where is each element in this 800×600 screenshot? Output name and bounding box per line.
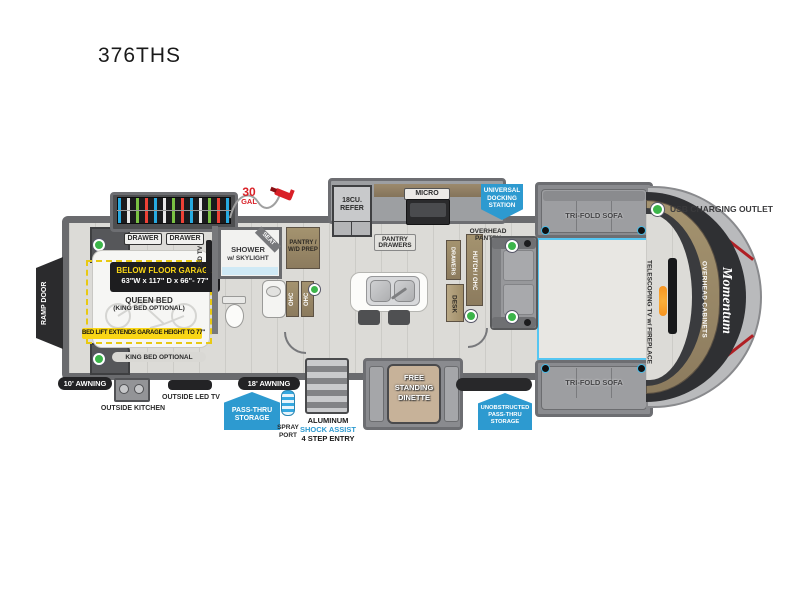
fuel-unit-label: GAL [236,198,262,207]
unobstructed-line3: STORAGE [478,419,532,426]
sink-basin-left [370,280,391,302]
cupholder [524,240,531,247]
usb-outlet-dot [506,311,518,323]
dinette-window [371,412,382,415]
awning-10-text: 10' AWNING [64,379,107,388]
desk-label: DESK [450,292,457,316]
outside-kitchen-burner [134,384,144,394]
trifold-sofa-bottom [541,366,647,410]
entry-steps [305,358,349,414]
ramp-door-label: RAMP DOOR [41,270,49,336]
refer-label-2: REFER [332,205,372,213]
cupholder [541,226,550,235]
telescoping-tv-screen [671,263,674,329]
pantry-wd-label-1: PANTRY / [286,240,320,247]
outside-led-tv-screen [172,382,208,385]
fuel-nozzle-icon [269,182,294,201]
pantry-drawers-label-2: DRAWERS [374,242,416,251]
drawer-label-left: DRAWER [124,233,162,245]
cupholder [637,364,646,373]
docking-line2: DOCKING [481,195,523,203]
trifold-sofa-top-label: TRI-FOLD SOFA [541,212,647,221]
tool-rack-rail [117,210,231,211]
floorplan-canvas: 376THS RAMP DOOR DRAWER DRAWER 30 GAL BE… [0,0,800,600]
range-glass [410,203,446,217]
living-room-floor [537,238,652,360]
awning-18-label: 18' AWNING [238,377,300,390]
shower-label-2: w/ SKYLIGHT [220,255,276,262]
spray-port-hose [281,390,295,416]
cupholder [524,319,531,326]
queen-bed-label: QUEEN BED [94,296,204,305]
side-sofa-back [492,238,501,328]
usb-legend-label: USB CHARGING OUTLET [670,205,773,215]
bottom-wall-window [148,368,186,373]
rear-wall-window [66,308,69,338]
telescoping-tv-label-line1: TELESCOPING TV [645,260,652,317]
passthru-line2: STORAGE [224,415,280,423]
docking-line3: STATION [481,202,523,210]
sofa-top-backrest [543,191,645,201]
toilet-bowl [225,304,244,328]
bottom-wall-window [106,368,140,373]
telescoping-tv-label: TELESCOPING TV w/ FIREPLACE [645,260,652,344]
page-title: 376THS [98,44,181,68]
sofa-top-window [552,186,636,189]
pantry-wd-label-2: W/D PREP [286,247,320,254]
usb-outlet-dot [465,310,477,322]
bath-ohc-left-label: OHC [289,288,296,310]
overhead-cabinets-label: OVERHEAD CABINETS [700,254,707,344]
led-tv-screen [208,243,210,271]
usb-outlet-dot [309,284,320,295]
led-tv-label: LED TV [197,240,204,274]
passthru-tube [456,378,532,391]
outside-kitchen-burner [119,384,129,394]
unobstructed-line1: UNOBSTRUCTED [478,405,532,412]
awning-10-label: 10' AWNING [58,377,112,390]
trifold-sofa-bottom-label: TRI-FOLD SOFA [541,379,647,388]
vanity-sink [266,286,281,297]
fireplace [659,286,667,316]
usb-legend-dot [651,203,664,216]
cupholder [637,226,646,235]
outside-kitchen-label: OUTSIDE KITCHEN [90,405,176,413]
island-stool [388,310,410,325]
outside-led-tv-label: OUTSIDE LED TV [160,394,222,402]
refrigerator-doors [334,221,370,235]
garage-dims-label: 63"W x 117" D x 66"- 77" [112,277,218,286]
shower-skylight [222,267,278,275]
brand-logo: Momentum [718,252,734,348]
entry-label-3: 4 STEP ENTRY [298,435,358,444]
dinette-window [392,421,436,425]
refer-label-1: 18CU. [332,197,372,205]
dinette-label-3: DINETTE [387,394,441,403]
cupholder [541,364,550,373]
shower-label-1: SHOWER [220,246,276,255]
usb-outlet-dot [93,353,105,365]
hutch-ohc-label: HUTCH / OHC [470,240,477,302]
kitchen-drawers-label: DRAWERS [449,244,455,278]
telescoping-tv-label-line2: w/ FIREPLACE [645,319,652,365]
passthru-line1: PASS-THRU [224,407,280,415]
awning-18-text: 18' AWNING [248,379,291,388]
side-sofa-cushion [503,284,534,315]
dinette-window [446,412,457,415]
bed-lift-label: BED LIFT EXTENDS GARAGE HEIGHT TO 77" [82,330,202,337]
dinette-label-2: STANDING [387,384,441,393]
unobstructed-passthru-badge: UNOBSTRUCTED PASS-THRU STORAGE [478,393,532,430]
unobstructed-line2: PASS-THRU [478,412,532,419]
side-sofa-cushion [503,250,534,281]
docking-line1: UNIVERSAL [481,187,523,195]
usb-outlet-dot [506,240,518,252]
island-stool [358,310,380,325]
dinette-label-1: FREE [387,374,441,383]
king-bed-option-label: KING BED OPTIONAL [112,352,206,362]
rear-wall-window [66,272,69,302]
bottom-wall-window [194,368,228,373]
sofa-bottom-window [552,408,636,411]
queen-bed-sublabel: (KING BED OPTIONAL) [94,305,204,312]
toilet-tank [222,296,246,304]
refrigerator-door-split [351,221,352,235]
